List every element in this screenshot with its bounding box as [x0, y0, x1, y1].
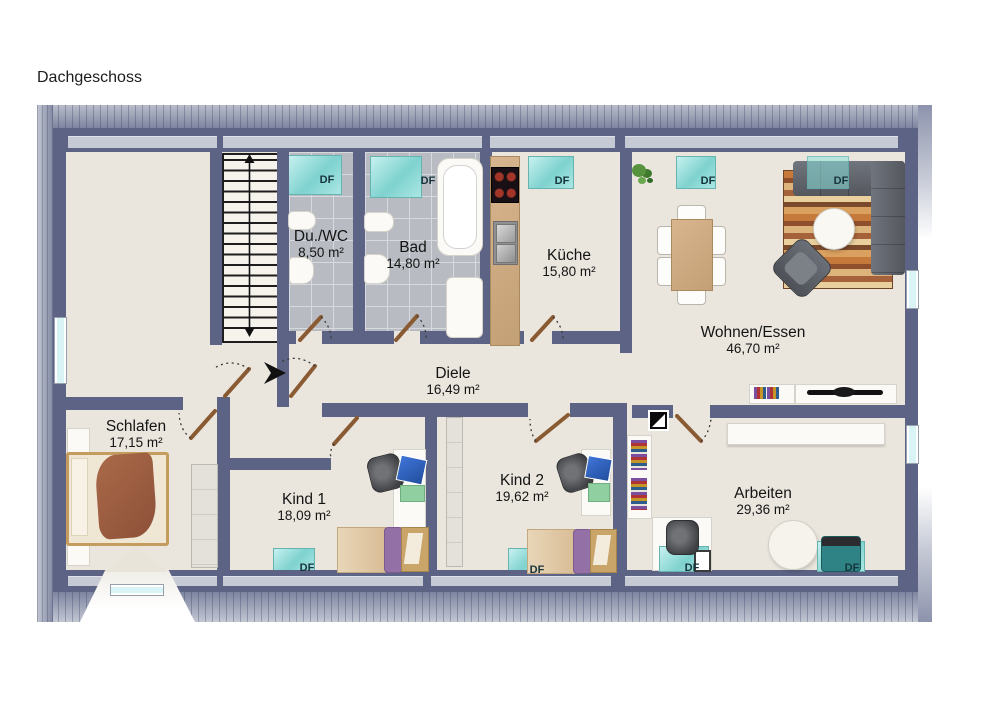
skylight-label: DF: [413, 175, 443, 187]
door-swing-arc: [553, 317, 563, 340]
room-name: Wohnen/Essen: [683, 325, 823, 341]
door-leaf: [300, 317, 321, 340]
room-label-kind1: Kind 1 18,09 m²: [234, 492, 374, 523]
door-swing-arc: [417, 316, 426, 340]
door-leaf: [536, 415, 568, 441]
door-swing-arc: [321, 317, 331, 340]
room-label-bad: Bad 14,80 m²: [343, 240, 483, 271]
room-name: Schlafen: [66, 419, 206, 435]
room-label-diele: Diele 16,49 m²: [383, 366, 523, 397]
skylight-label: DF: [522, 564, 552, 576]
skylight-label: DF: [677, 562, 707, 574]
door-swing-arc: [701, 419, 711, 441]
symbols-overlay: [0, 0, 1000, 707]
room-area: 29,36 m²: [693, 502, 833, 517]
skylight-label: DF: [547, 175, 577, 187]
room-name: Arbeiten: [693, 486, 833, 502]
room-area: 17,15 m²: [66, 435, 206, 450]
room-area: 18,09 m²: [234, 508, 374, 523]
door-swing-arc: [281, 358, 315, 366]
door-leaf: [334, 418, 357, 444]
skylight-label: DF: [837, 562, 867, 574]
room-label-kueche: Küche 15,80 m²: [499, 248, 639, 279]
door-swing-arc: [213, 363, 249, 369]
room-name: Diele: [383, 366, 523, 382]
room-name: Kind 2: [452, 473, 592, 489]
door-leaf: [532, 317, 553, 340]
room-name: Bad: [343, 240, 483, 256]
room-area: 14,80 m²: [343, 256, 483, 271]
skylight-label: DF: [693, 175, 723, 187]
room-label-schlafen: Schlafen 17,15 m²: [66, 419, 206, 450]
room-name: Küche: [499, 248, 639, 264]
stairs-arrow-top: [245, 154, 255, 163]
entrance-marker: [649, 411, 668, 430]
skylight-label: DF: [312, 174, 342, 186]
door-leaf: [225, 369, 249, 396]
room-area: 16,49 m²: [383, 382, 523, 397]
door-leaf: [291, 366, 315, 396]
room-area: 46,70 m²: [683, 341, 823, 356]
walk-direction-arrow: [264, 362, 286, 384]
skylight-label: DF: [826, 175, 856, 187]
door-swing-arc: [530, 419, 536, 441]
room-label-arbeiten: Arbeiten 29,36 m²: [693, 486, 833, 517]
door-leaf: [396, 316, 417, 340]
room-area: 15,80 m²: [499, 264, 639, 279]
skylight-label: DF: [292, 562, 322, 574]
door-leaf: [677, 416, 701, 441]
room-label-wohnen-essen: Wohnen/Essen 46,70 m²: [683, 325, 823, 356]
stairs-arrow-bottom: [245, 328, 255, 337]
room-area: 19,62 m²: [452, 489, 592, 504]
room-name: Kind 1: [234, 492, 374, 508]
floor-plan: Dachgeschoss: [0, 0, 1000, 707]
door-swing-arc: [330, 444, 334, 457]
room-label-kind2: Kind 2 19,62 m²: [452, 473, 592, 504]
